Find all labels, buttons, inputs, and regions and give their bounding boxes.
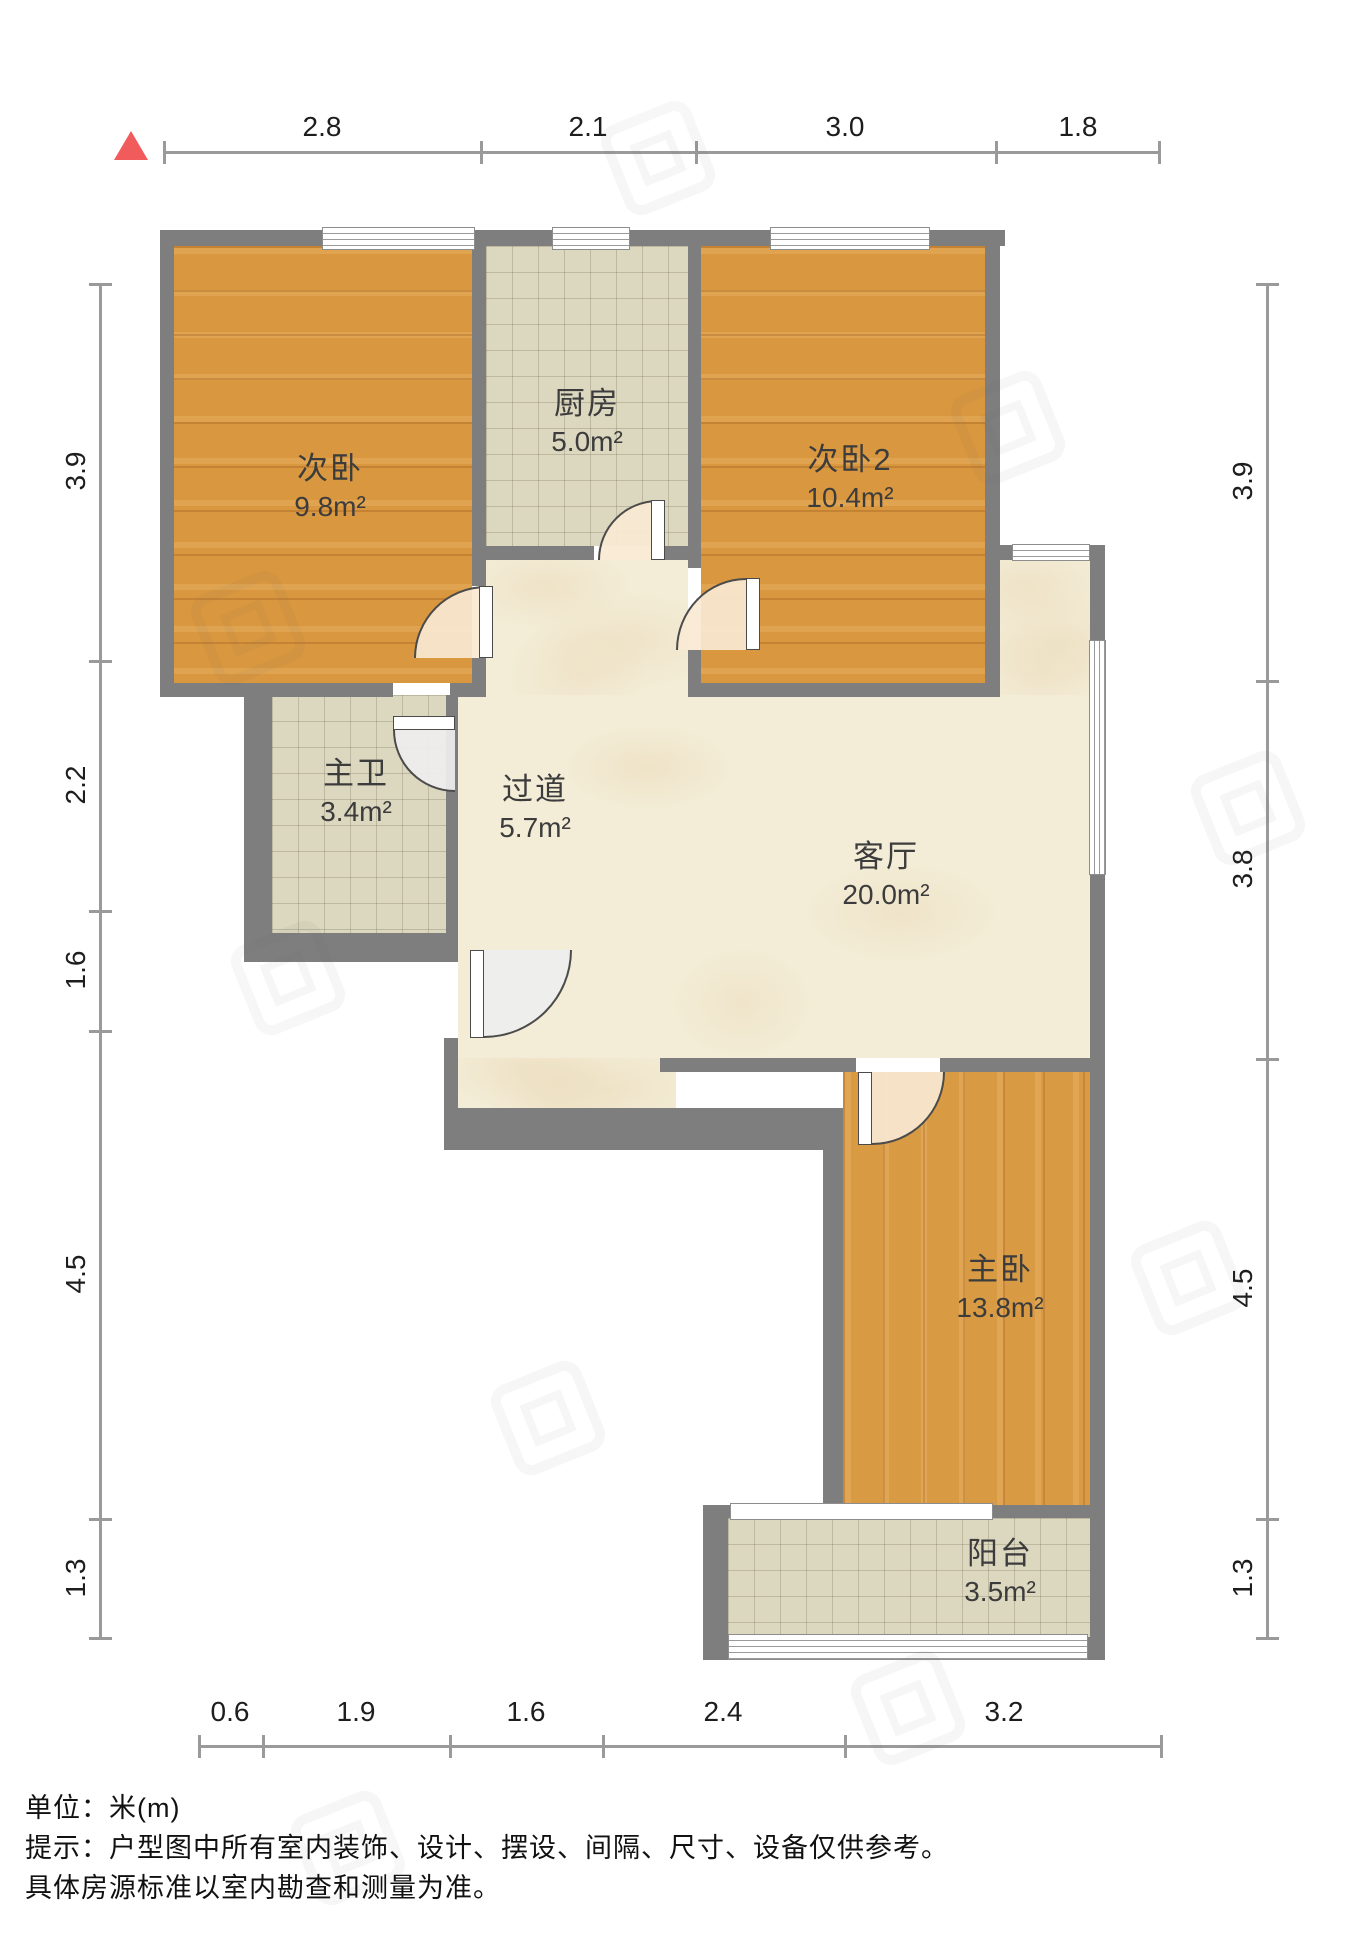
tick xyxy=(844,1735,847,1758)
room-label-hallway: 过道 5.7m² xyxy=(499,771,571,845)
room-label-living: 客厅 20.0m² xyxy=(842,838,929,912)
wall xyxy=(160,683,393,697)
tick xyxy=(1256,1637,1279,1640)
room-name: 客厅 xyxy=(842,838,929,877)
tick xyxy=(1256,1518,1279,1521)
room-label-kitchen: 厨房 5.0m² xyxy=(551,385,623,459)
room-label-bedroom2: 次卧 9.8m² xyxy=(294,450,366,524)
watermark xyxy=(1126,1216,1251,1341)
wall xyxy=(472,246,486,586)
tick xyxy=(602,1735,605,1758)
hallway-floor xyxy=(486,560,688,695)
living-floor-upper xyxy=(1000,560,1090,695)
wall xyxy=(993,1505,1105,1518)
dim-top-3: 3.0 xyxy=(826,111,865,143)
bathroom-door xyxy=(393,716,455,730)
bedroom2-window xyxy=(322,227,475,250)
kitchen-door xyxy=(651,500,665,560)
room-label-bathroom: 主卫 3.4m² xyxy=(320,755,392,829)
living-side-window xyxy=(1089,640,1106,875)
tick xyxy=(1256,283,1279,286)
living-floor-nook xyxy=(458,1058,676,1108)
room-area: 3.4m² xyxy=(320,794,392,829)
room-name: 次卧 xyxy=(294,450,366,489)
north-arrow-icon xyxy=(114,131,148,160)
dim-right-1: 3.9 xyxy=(1227,462,1259,501)
dim-bottom-2: 1.9 xyxy=(337,1696,376,1728)
footer-unit: 单位：米(m) xyxy=(25,1786,180,1825)
tick xyxy=(89,283,112,286)
tick xyxy=(89,910,112,913)
room-label-master: 主卧 13.8m² xyxy=(956,1251,1043,1325)
dimension-line-left xyxy=(99,283,102,1640)
floor-plan: 次卧 9.8m² 厨房 5.0m² 次卧2 10.4m² 主卫 3.4m² 过道… xyxy=(0,0,1369,1937)
dim-bottom-4: 2.4 xyxy=(704,1696,743,1728)
room-name: 厨房 xyxy=(551,385,623,424)
tick xyxy=(1158,141,1161,164)
room-name: 阳台 xyxy=(964,1535,1036,1574)
entrance-door xyxy=(470,950,484,1038)
tick xyxy=(995,141,998,164)
master-door xyxy=(858,1072,872,1145)
tick xyxy=(89,1518,112,1521)
dim-left-1: 3.9 xyxy=(60,452,92,491)
tick xyxy=(449,1735,452,1758)
wall xyxy=(688,683,1000,697)
watermark xyxy=(596,96,721,221)
tick xyxy=(89,660,112,663)
wall xyxy=(160,230,174,697)
wall xyxy=(688,246,701,568)
room-area: 9.8m² xyxy=(294,489,366,524)
watermark xyxy=(846,1646,971,1771)
dimension-line-bottom xyxy=(198,1745,1163,1748)
bedroom2-door xyxy=(479,586,493,658)
tick xyxy=(89,1637,112,1640)
room-area: 10.4m² xyxy=(806,480,893,515)
tick xyxy=(1256,1058,1279,1061)
tick xyxy=(198,1735,201,1758)
dim-right-4: 1.3 xyxy=(1227,1559,1259,1598)
wall xyxy=(940,1058,1105,1072)
dim-left-5: 1.3 xyxy=(60,1559,92,1598)
tick xyxy=(1160,1735,1163,1758)
room-name: 主卧 xyxy=(956,1251,1043,1290)
dim-left-4: 4.5 xyxy=(60,1255,92,1294)
tick xyxy=(1256,680,1279,683)
wall xyxy=(244,695,272,962)
room-label-bedroom3: 次卧2 10.4m² xyxy=(806,441,893,515)
wall xyxy=(472,658,486,697)
living-top-window xyxy=(1012,544,1090,561)
dim-top-1: 2.8 xyxy=(303,111,342,143)
bedroom3-window xyxy=(770,227,930,250)
watermark xyxy=(1186,746,1311,871)
watermark xyxy=(486,1356,611,1481)
wall xyxy=(472,546,594,560)
tick xyxy=(262,1735,265,1758)
dim-bottom-5: 3.2 xyxy=(985,1696,1024,1728)
room-area: 5.7m² xyxy=(499,810,571,845)
balcony-sliding-door xyxy=(730,1503,993,1520)
wall xyxy=(660,1058,856,1072)
dim-left-3: 1.6 xyxy=(60,951,92,990)
dimension-line-right xyxy=(1266,283,1269,1640)
dim-top-4: 1.8 xyxy=(1059,111,1098,143)
wall xyxy=(703,1505,730,1518)
room-name: 过道 xyxy=(499,771,571,810)
wall xyxy=(823,1108,843,1518)
dim-left-2: 2.2 xyxy=(60,766,92,805)
tick xyxy=(480,141,483,164)
room-area: 3.5m² xyxy=(964,1574,1036,1609)
room-area: 13.8m² xyxy=(956,1290,1043,1325)
wall xyxy=(444,1108,843,1150)
footer-note-1: 提示：户型图中所有室内装饰、设计、摆设、间隔、尺寸、设备仅供参考。 xyxy=(25,1826,949,1865)
wall xyxy=(1090,1058,1105,1518)
bedroom3-door xyxy=(746,578,760,650)
tick xyxy=(163,141,166,164)
tick xyxy=(89,1030,112,1033)
room-name: 次卧2 xyxy=(806,441,893,480)
room-area: 5.0m² xyxy=(551,424,623,459)
dim-bottom-3: 1.6 xyxy=(507,1696,546,1728)
room-name: 主卫 xyxy=(320,755,392,794)
room-area: 20.0m² xyxy=(842,877,929,912)
room-label-balcony: 阳台 3.5m² xyxy=(964,1535,1036,1609)
footer-note-2: 具体房源标准以室内勘查和测量为准。 xyxy=(25,1866,501,1905)
dim-bottom-1: 0.6 xyxy=(211,1696,250,1728)
kitchen-window xyxy=(552,227,630,250)
